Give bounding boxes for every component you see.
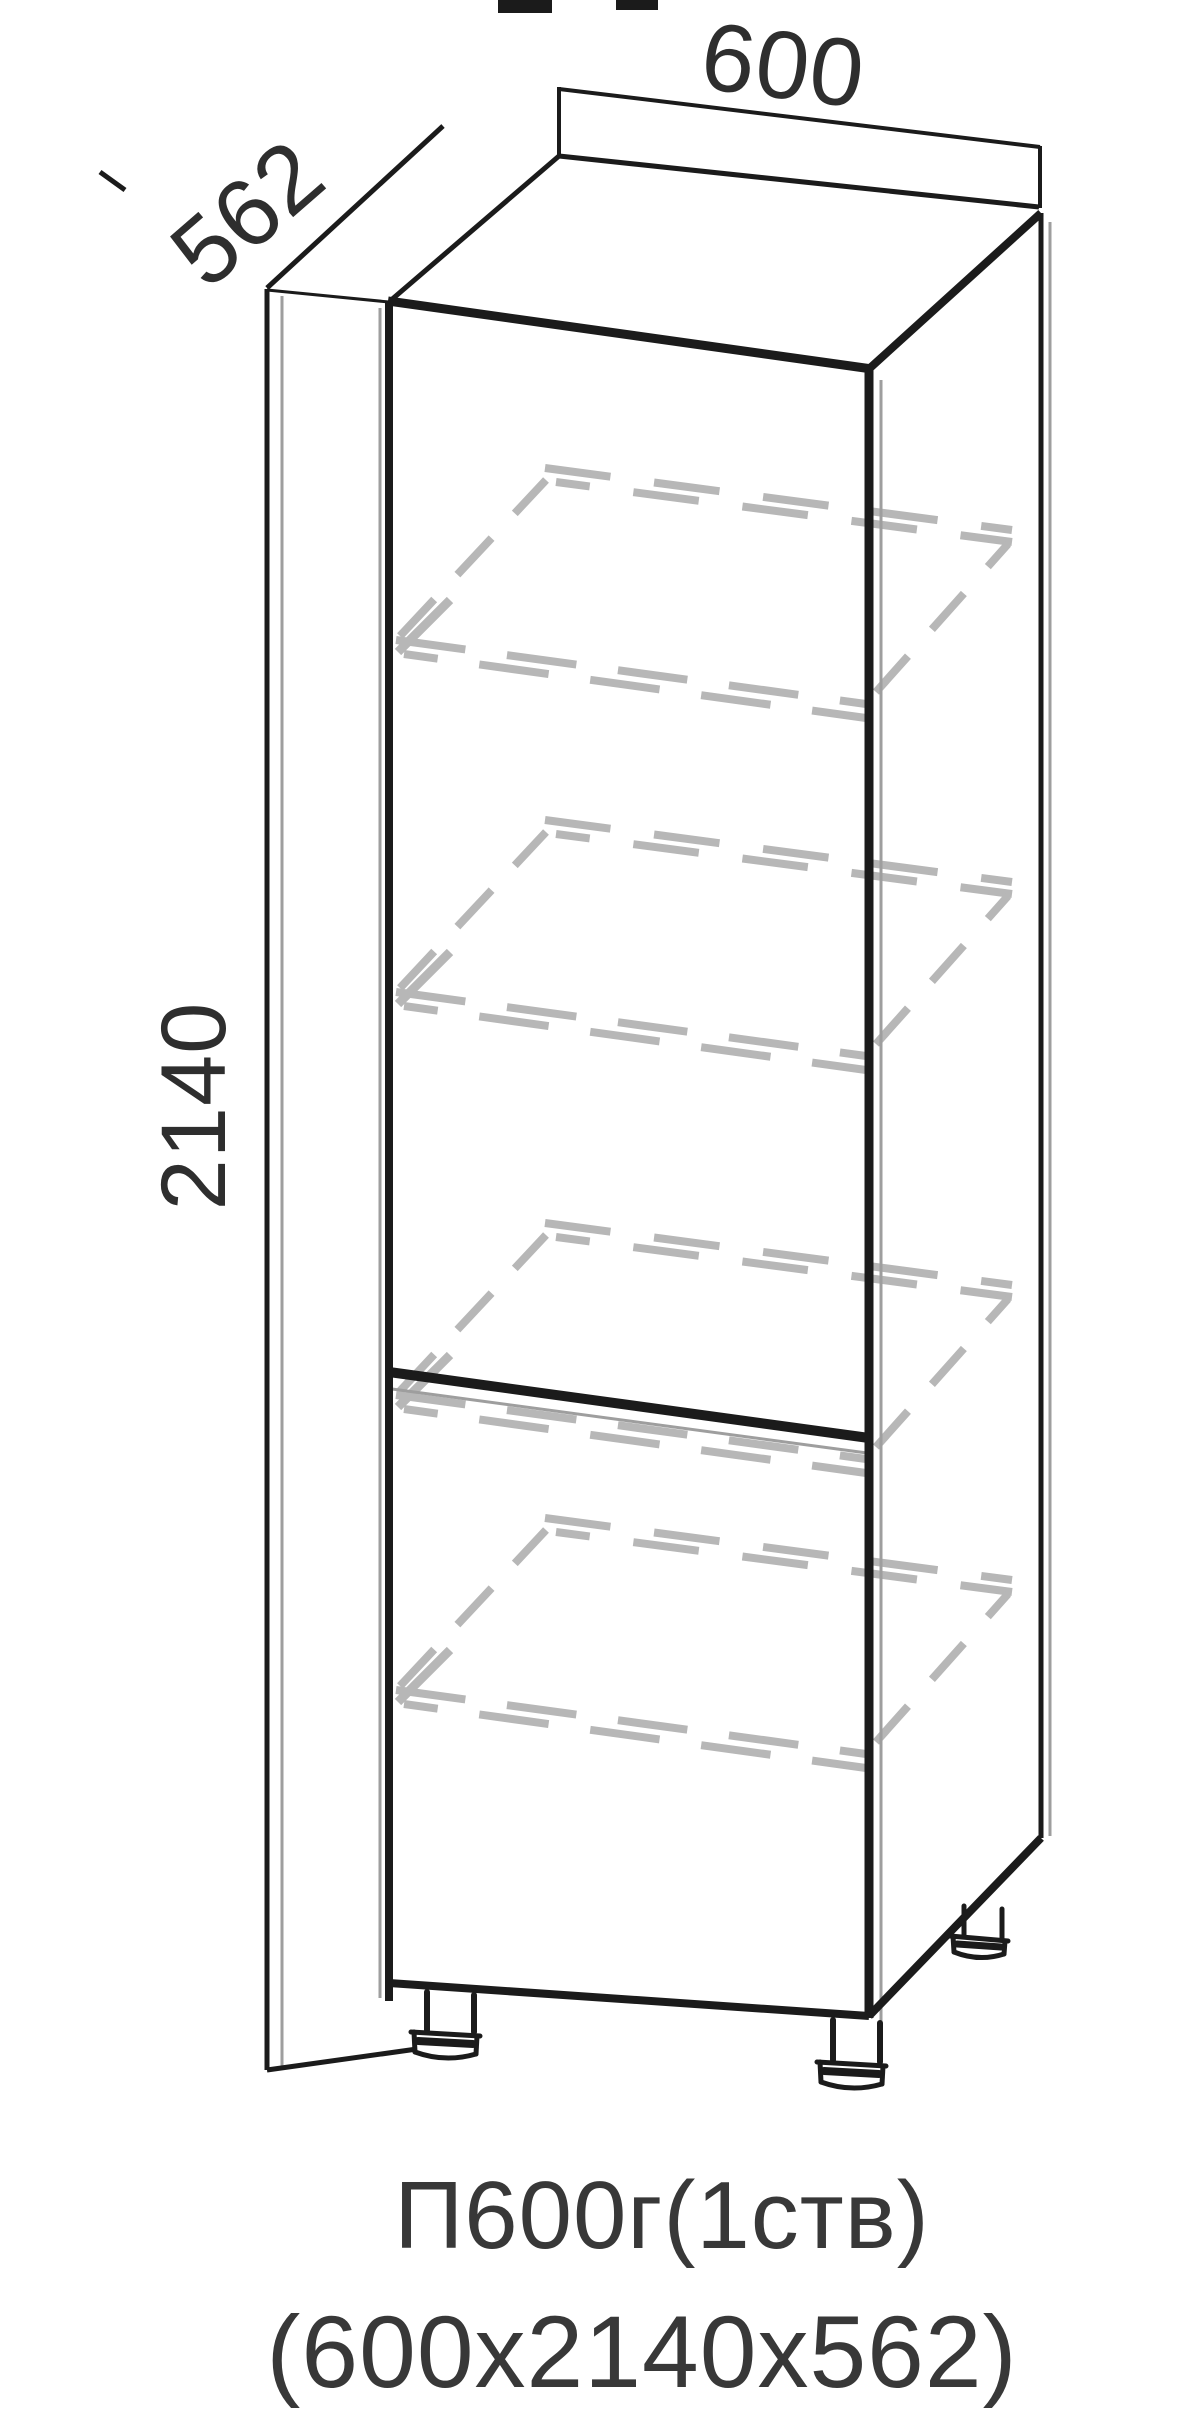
side-panel-bottom-edge xyxy=(267,2049,417,2070)
shelf xyxy=(396,1518,1012,1768)
shelf-hidden-lines xyxy=(396,468,1012,1768)
shelf xyxy=(396,820,1012,1070)
shelf xyxy=(396,1223,1012,1473)
front-right-leg xyxy=(817,2020,886,2088)
dimension-width-label: 600 xyxy=(696,8,870,123)
top-right-edge xyxy=(870,213,1041,368)
back-right-leg xyxy=(950,1906,1008,1958)
caption-model-name: П600г(1ств) xyxy=(394,2168,929,2264)
front-left-leg xyxy=(411,1992,480,2058)
top-back-edge xyxy=(559,156,1039,207)
top-edge-crop-marks xyxy=(498,0,658,13)
caption-overall-size: (600х2140х562) xyxy=(266,2301,1017,2403)
front-bottom-edge xyxy=(389,1983,869,2016)
dimension-height-label: 2140 xyxy=(148,1002,240,1211)
front-top-edge xyxy=(388,301,872,369)
shelf xyxy=(396,468,1012,718)
drawing-canvas: 600 562 2140 П600г(1ств) (600х2140х562) xyxy=(0,0,1200,2412)
cabinet-outline xyxy=(267,126,1041,2070)
bottom-right-edge xyxy=(869,1838,1041,2016)
